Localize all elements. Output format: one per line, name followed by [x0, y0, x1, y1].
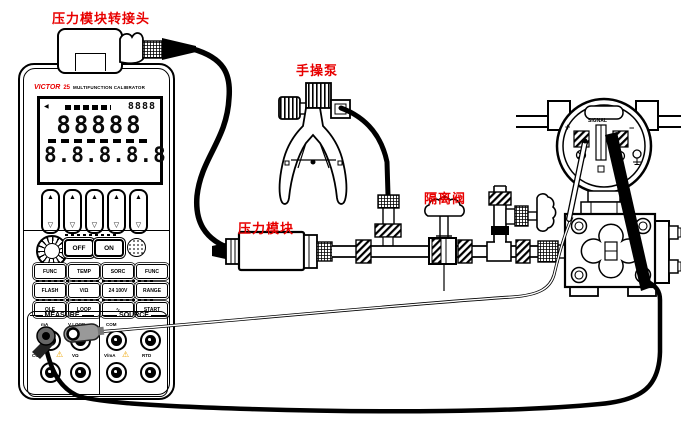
measure-jack-ma[interactable] [40, 330, 61, 351]
up-arrow-icon: ▲ [113, 194, 120, 201]
on-button[interactable]: ON [94, 239, 124, 257]
up-arrow-icon: ▲ [69, 194, 76, 201]
key-temp[interactable]: TEMP [68, 264, 100, 279]
measure-jack-com[interactable] [40, 362, 61, 383]
panel-separator [24, 230, 169, 231]
measure-jack-vohm[interactable] [70, 362, 91, 383]
up-arrow-icon: ▲ [135, 194, 142, 201]
key-caption-text [36, 280, 156, 282]
source-jack-1[interactable] [106, 330, 127, 351]
jack-label-rtd: RTD [142, 353, 151, 358]
speaker-grille [127, 238, 146, 257]
up-arrow-icon: ▲ [91, 194, 98, 201]
white-lead-clip [569, 142, 585, 219]
key-sorc[interactable]: SORC [102, 264, 134, 279]
jack-label-com-src: COM [106, 322, 117, 327]
down-arrow-icon: ▽ [136, 222, 141, 229]
measure-section-label: MEASURE [30, 312, 94, 319]
annunciator-left-icon: ◀ [44, 104, 49, 110]
plus-terminal-label: + [565, 122, 570, 132]
diagram-canvas: 压力模块转接头 手操泵 压力模块 隔离阀 VICTOR 25 MULTIFUNC… [0, 0, 681, 427]
down-arrow-icon: ▽ [114, 222, 119, 229]
off-button[interactable]: OFF [64, 239, 94, 257]
key-flash[interactable]: FLASH [34, 283, 66, 298]
warning-triangle-icon: ⚠ [122, 351, 129, 359]
source-jack-3[interactable] [106, 362, 127, 383]
adapter-label: 压力模块转接头 [52, 8, 150, 27]
rocker-switch[interactable]: ▲▽ [129, 189, 148, 234]
display-row-2: 8.8.8.8.8 [44, 145, 156, 166]
pressure-module [212, 232, 332, 270]
pressure-module-adapter [57, 28, 123, 74]
jack-label-vloop: V LOOP [68, 322, 85, 327]
rocker-switch[interactable]: ▲▽ [107, 189, 126, 234]
pressure-transmitter [516, 99, 681, 214]
adapter-cable [193, 49, 234, 250]
brand-logo: VICTOR [34, 84, 60, 91]
key-range[interactable]: RANGE [136, 283, 168, 298]
isolation-valve [425, 197, 464, 291]
jack-label-com: COM [32, 353, 43, 358]
minus-terminal-label: − [629, 123, 634, 133]
hand-pump [279, 83, 350, 204]
up-arrow-icon: ▲ [47, 194, 54, 201]
jack-label-vma: V/mA [104, 353, 116, 358]
black-lead-clip [605, 132, 652, 291]
rocker-switch[interactable]: ▲▽ [63, 189, 82, 234]
model-number: 25 [63, 85, 70, 91]
jack-label-ma: mA [41, 322, 48, 327]
pressure-module-label: 压力模块 [238, 218, 294, 237]
section-divider [99, 313, 100, 394]
adapter-notch [75, 53, 106, 71]
rocker-switch-row: ▲▽ ▲▽ ▲▽ ▲▽ ▲▽ [41, 189, 148, 234]
down-arrow-icon: ▽ [48, 222, 53, 229]
key-24-100v[interactable]: 24 100V [102, 283, 134, 298]
key-func-1[interactable]: FUNC [34, 264, 66, 279]
key-caption-text [65, 234, 117, 236]
hand-pump-label: 手操泵 [296, 60, 338, 79]
source-jack-2[interactable] [140, 330, 161, 351]
adapter-connector [120, 33, 196, 63]
isolation-valve-label: 隔离阀 [424, 188, 466, 207]
manifold [538, 214, 681, 296]
annunciator-bar [65, 105, 111, 110]
key-caption-text [36, 299, 156, 301]
block-valve [506, 194, 556, 231]
rocker-switch[interactable]: ▲▽ [41, 189, 60, 234]
device-title: MULTIFUNCTION CALIBRATOR [73, 85, 145, 90]
pump-hose [341, 108, 401, 246]
calibrator-device: VICTOR 25 MULTIFUNCTION CALIBRATOR ◀ 888… [18, 63, 175, 400]
lcd-display: ◀ 8888 88888 8.8.8.8.8 [37, 96, 163, 185]
brand-row: VICTOR 25 MULTIFUNCTION CALIBRATOR [34, 84, 162, 91]
warning-triangle-icon: ⚠ [56, 351, 63, 359]
jack-label-vohm: VΩ [72, 353, 79, 358]
source-jack-4[interactable] [140, 362, 161, 383]
display-row-1: 88888 [44, 113, 156, 137]
key-func-2[interactable]: FUNC [136, 264, 168, 279]
measure-jack-v[interactable] [70, 330, 91, 351]
source-section-label: SOURCE [102, 312, 166, 319]
key-v-ohm[interactable]: V/Ω [68, 283, 100, 298]
rocker-switch[interactable]: ▲▽ [85, 189, 104, 234]
down-arrow-icon: ▽ [92, 222, 97, 229]
down-arrow-icon: ▽ [70, 222, 75, 229]
signal-label: SIGNAL [588, 118, 607, 124]
